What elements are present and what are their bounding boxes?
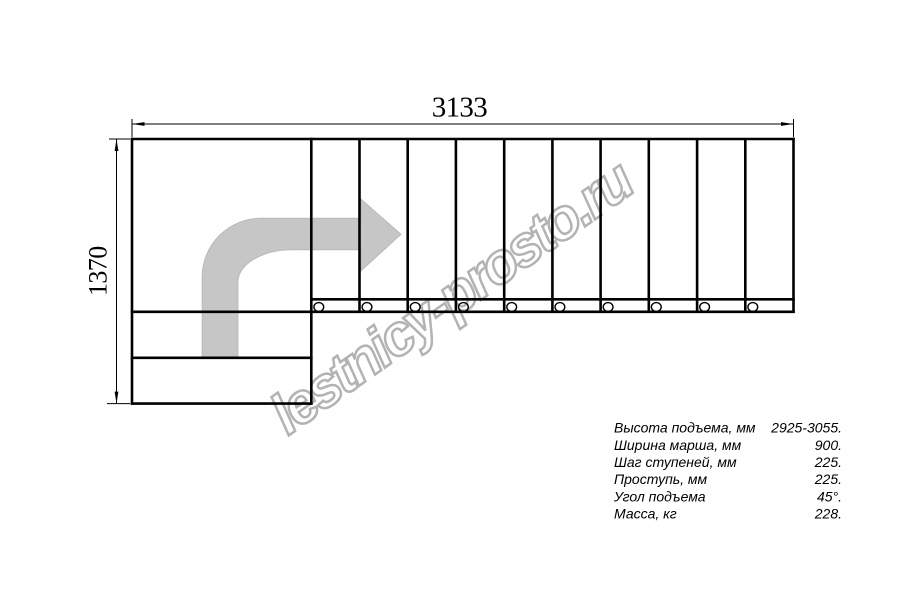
svg-text:Шаг ступеней, мм: Шаг ступеней, мм [614,454,737,470]
svg-text:2925-3055.: 2925-3055. [770,420,842,436]
svg-text:225.: 225. [814,454,842,470]
svg-text:900.: 900. [815,437,842,453]
svg-text:3133: 3133 [432,91,487,123]
svg-text:Высота подъема, мм: Высота подъема, мм [614,420,756,436]
svg-text:Проступь, мм: Проступь, мм [614,471,708,487]
svg-text:Угол подъема: Угол подъема [613,488,706,504]
svg-text:1370: 1370 [84,246,113,296]
svg-text:45°.: 45°. [817,488,842,504]
svg-text:225.: 225. [814,471,842,487]
svg-text:Ширина марша, мм: Ширина марша, мм [614,437,742,453]
svg-text:228.: 228. [814,506,842,522]
svg-text:Масса, кг: Масса, кг [614,506,677,522]
